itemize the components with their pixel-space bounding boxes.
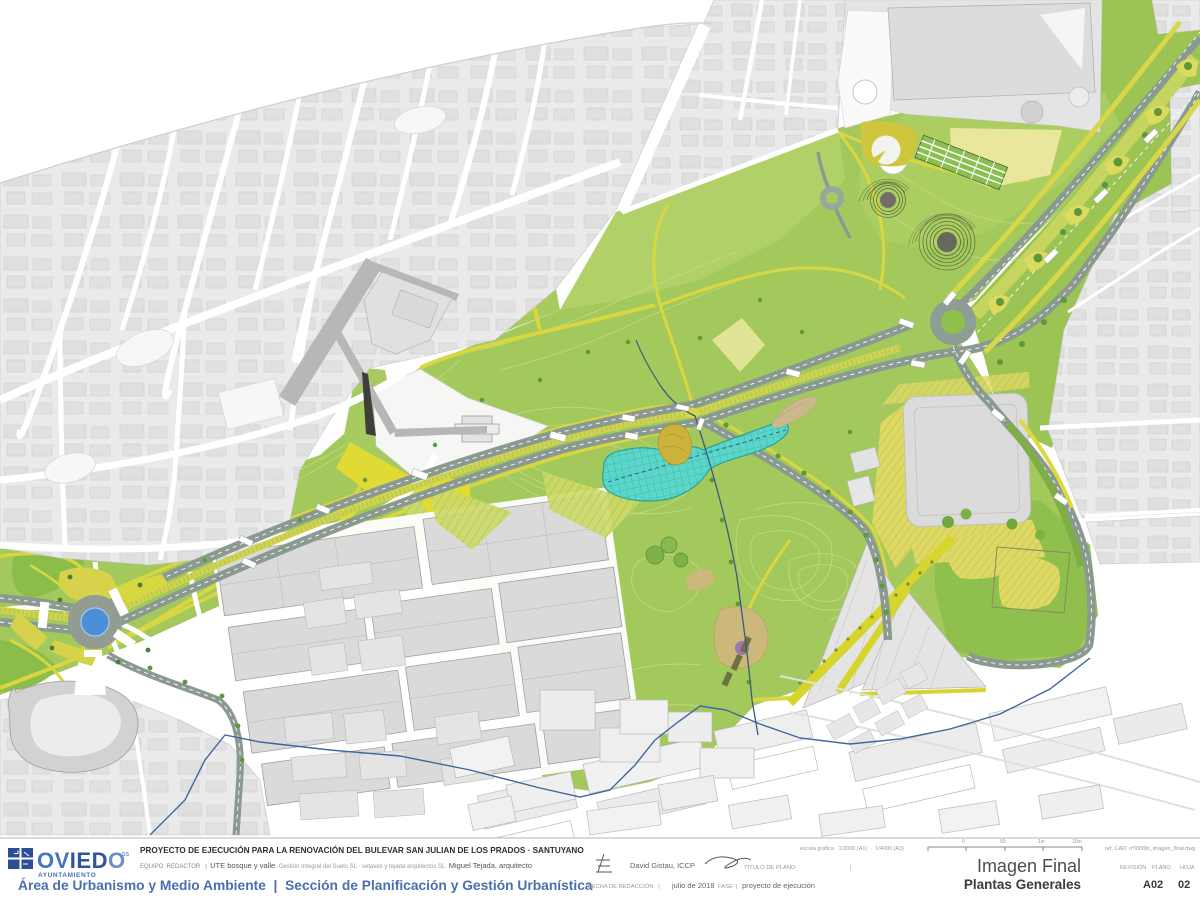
svg-text:FECHA DE REDACCIÓN |: FECHA DE REDACCIÓN | xyxy=(588,883,660,890)
svg-text:REVISIÓN: REVISIÓN xyxy=(1120,864,1146,871)
svg-text:OVIEDO: OVIEDO xyxy=(37,848,126,873)
svg-text:TÍTULO DE PLANO: TÍTULO DE PLANO xyxy=(744,864,796,871)
svg-text:0: 0 xyxy=(962,839,965,845)
svg-text:Área de Urbanismo y Medio Ambi: Área de Urbanismo y Medio Ambiente | Sec… xyxy=(18,877,593,893)
svg-text:ref. CAD: nº9999b_imagen_final: ref. CAD: nº9999b_imagen_final.dwg xyxy=(1105,845,1195,852)
svg-text:HOJA: HOJA xyxy=(1180,865,1195,871)
svg-text:02: 02 xyxy=(1178,879,1190,891)
svg-text:A02: A02 xyxy=(1143,879,1163,891)
svg-text:PROYECTO DE EJECUCIÓN PARA LA: PROYECTO DE EJECUCIÓN PARA LA RENOVACIÓN… xyxy=(140,844,584,855)
svg-text:10m: 10m xyxy=(1072,839,1082,845)
svg-text:Plantas Generales: Plantas Generales xyxy=(964,877,1081,892)
svg-text:David Gistau, ICCP: David Gistau, ICCP xyxy=(630,861,695,870)
svg-text:escala gráfica 1/2000 (A1): escala gráfica 1/2000 (A1) · 1/4000 (A3) xyxy=(800,846,904,852)
svg-text:ss: ss xyxy=(122,851,130,858)
svg-text:1in: 1in xyxy=(1038,839,1045,845)
svg-text:50: 50 xyxy=(1000,839,1006,845)
svg-text:Imagen Final: Imagen Final xyxy=(977,856,1081,876)
svg-text:proyecto de ejecución: proyecto de ejecución xyxy=(742,881,815,890)
svg-text:PLANO: PLANO xyxy=(1152,865,1171,871)
svg-text:julio de 2018: julio de 2018 xyxy=(671,881,715,890)
svg-text:FASE |: FASE | xyxy=(718,884,738,890)
